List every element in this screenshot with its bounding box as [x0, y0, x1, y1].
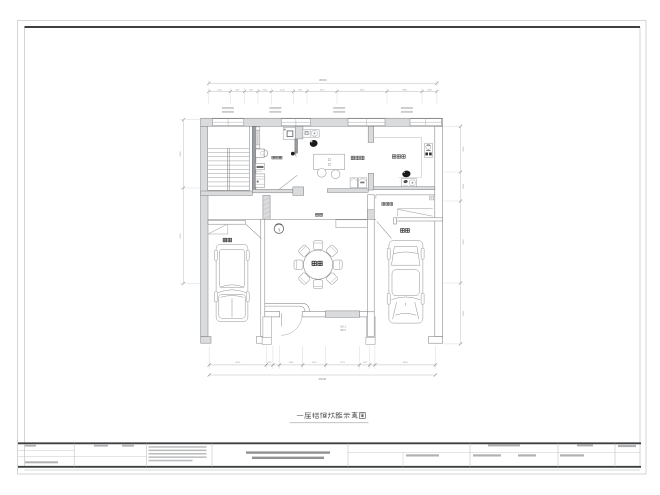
svg-text:36240: 36240	[318, 377, 326, 381]
svg-text:601: 601	[363, 362, 367, 364]
svg-text:1801: 1801	[289, 362, 295, 364]
svg-text:9550: 9550	[180, 233, 182, 239]
svg-text:1490: 1490	[427, 89, 433, 91]
svg-text:390: 390	[249, 89, 253, 91]
svg-text:4980: 4980	[402, 89, 408, 91]
svg-text:9000: 9000	[235, 362, 241, 364]
svg-text:4500: 4500	[360, 89, 366, 91]
svg-text:2900: 2900	[463, 183, 465, 189]
svg-text:2301: 2301	[312, 362, 318, 364]
svg-text:930: 930	[298, 89, 302, 91]
svg-text:6900: 6900	[180, 151, 182, 157]
svg-text:900: 900	[236, 89, 240, 91]
svg-text:2010: 2010	[280, 89, 286, 91]
svg-text:8021: 8021	[340, 329, 346, 332]
svg-text:8200: 8200	[463, 239, 465, 245]
svg-text:1500: 1500	[262, 89, 268, 91]
svg-text:6000: 6000	[463, 310, 465, 316]
svg-text:4500: 4500	[463, 146, 465, 152]
svg-text:3271: 3271	[340, 362, 346, 364]
svg-text:3600: 3600	[403, 362, 409, 364]
svg-text:2100: 2100	[217, 89, 223, 91]
svg-text:36000: 36000	[319, 78, 327, 82]
svg-text:600: 600	[268, 362, 272, 364]
svg-text:3270: 3270	[320, 89, 326, 91]
